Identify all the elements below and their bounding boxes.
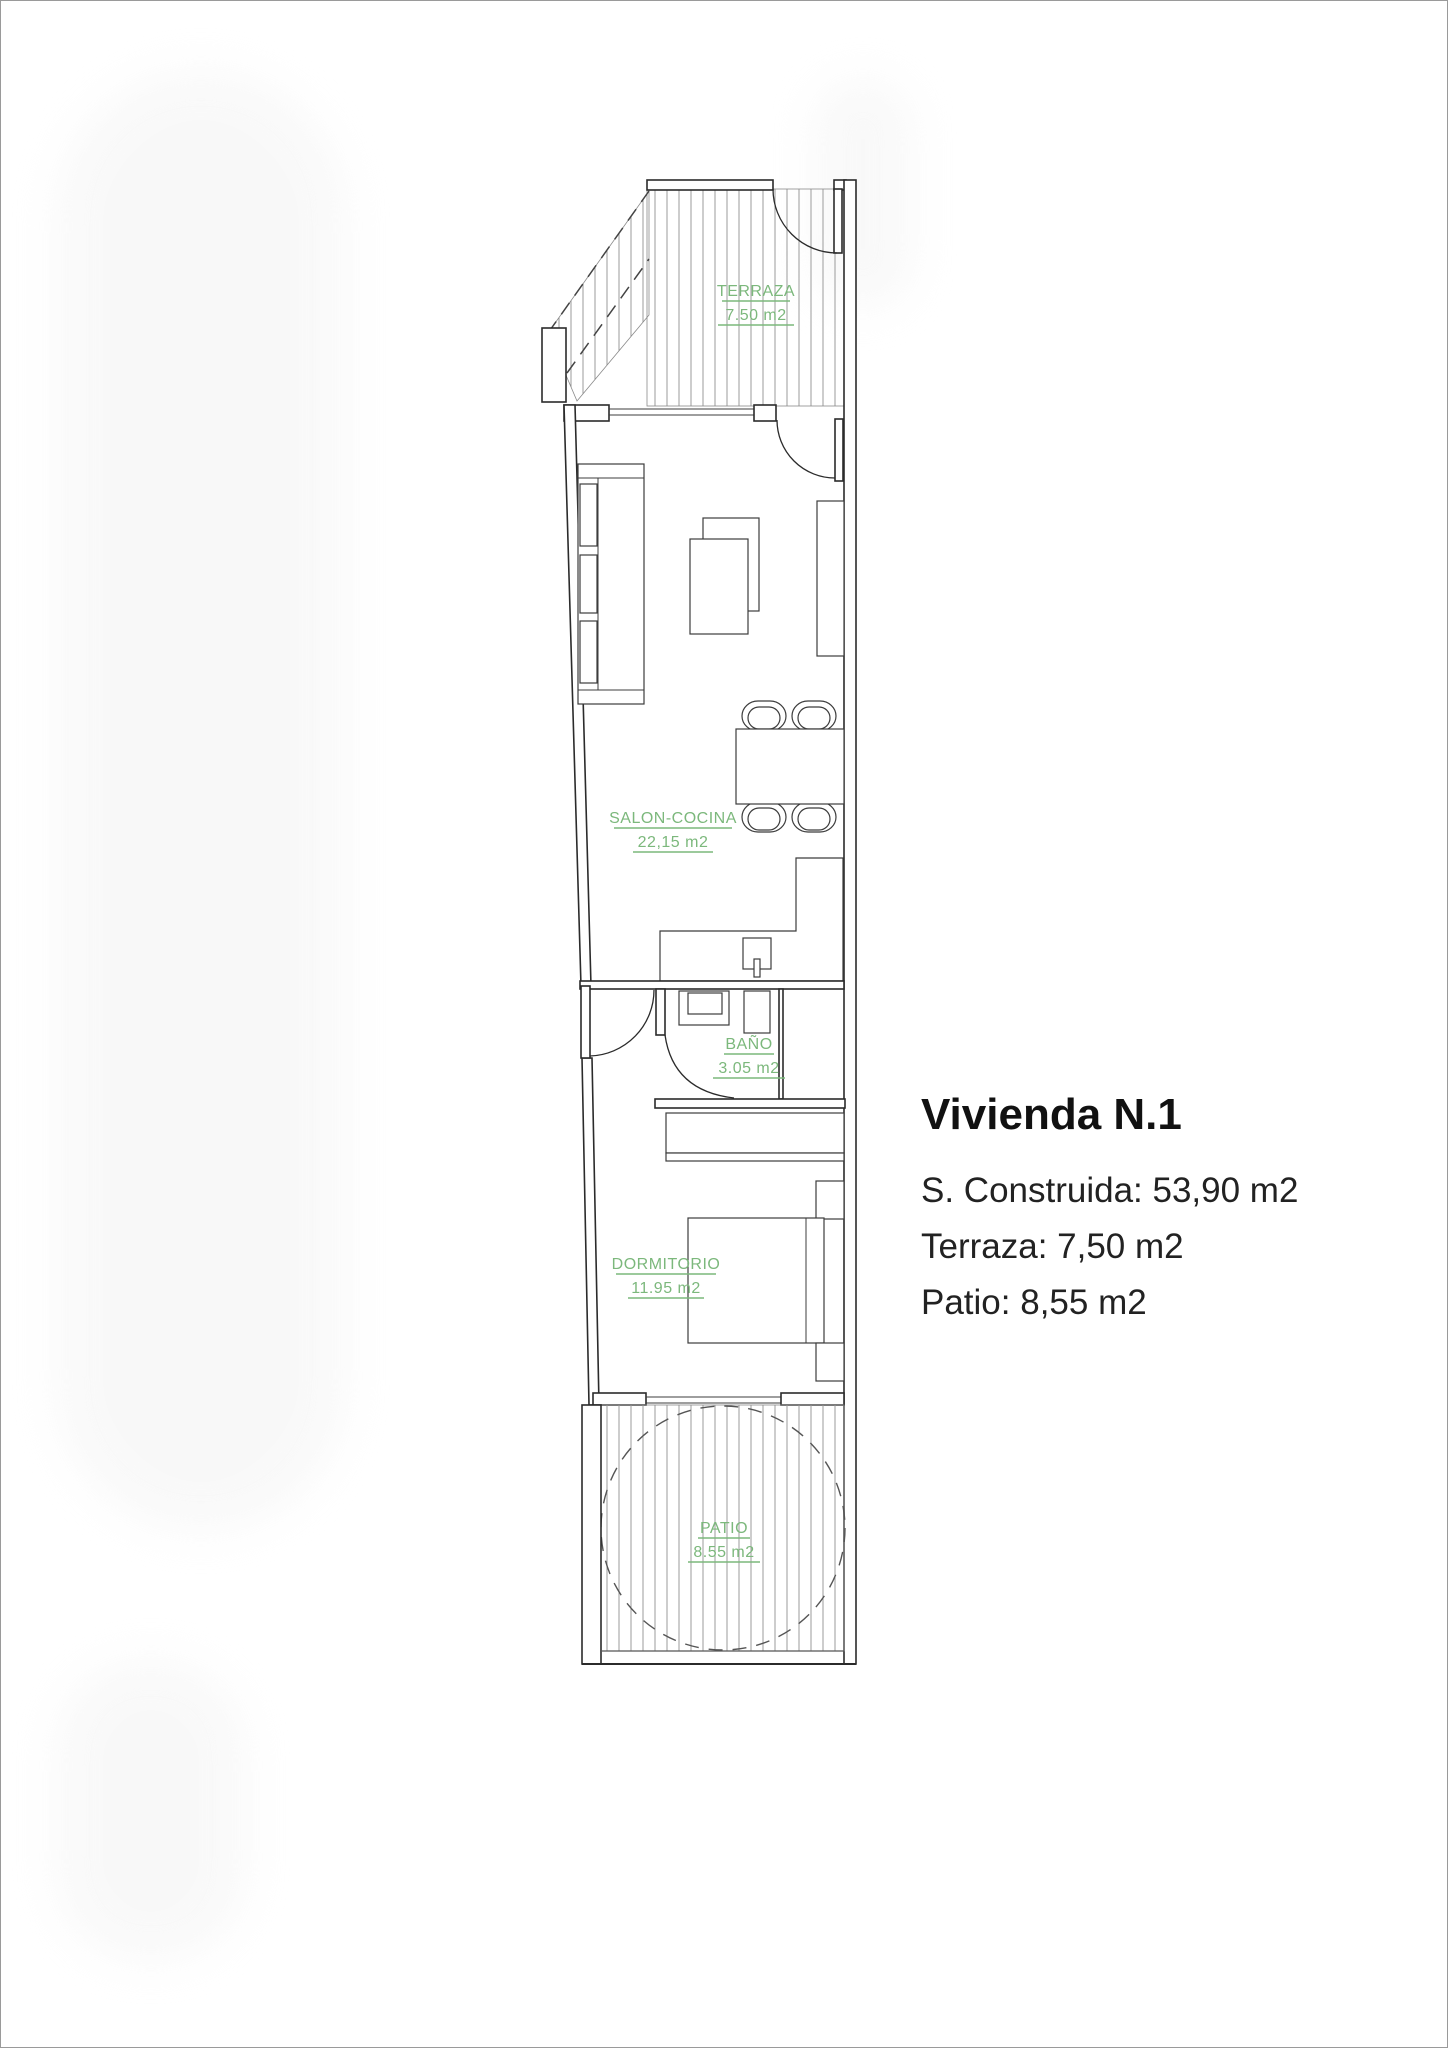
kitchen-column: [817, 501, 844, 656]
dining-chair-inner: [748, 808, 780, 830]
bath-partition: [779, 989, 783, 1099]
floor-plan-drawing: TERRAZA 7.50 m2 SALON-COCINA 22,15 m2 BA…: [1, 1, 1448, 2048]
patio-name: PATIO: [700, 1520, 748, 1537]
dormitorio-area: 11.95 m2: [631, 1280, 701, 1297]
entry-door-arc: [777, 420, 835, 478]
bed: [688, 1218, 824, 1343]
kitchen-tap: [754, 959, 760, 977]
terrace-area-line: Terraza: 7,50 m2: [921, 1219, 1298, 1275]
dining-set: [736, 701, 844, 832]
salon-top-wall-mid: [754, 405, 776, 421]
room-label-bano: BAÑO 3.05 m2: [713, 1033, 785, 1078]
wardrobe: [666, 1113, 844, 1153]
salon-area: 22,15 m2: [638, 834, 709, 851]
bath-door-leaf: [656, 989, 665, 1035]
terraza-area: 7.50 m2: [725, 307, 786, 324]
bath-sink: [688, 993, 722, 1014]
left-wall-lower: [582, 1058, 599, 1405]
dining-table: [736, 729, 844, 804]
terraza-name: TERRAZA: [717, 283, 795, 300]
bath-top-wall: [580, 981, 844, 989]
dining-chair-inner: [748, 707, 780, 729]
sofa: [578, 464, 644, 704]
terrace-door-leaf: [834, 189, 842, 253]
terrace-top-wall: [647, 180, 773, 190]
hall-door-leaf: [581, 986, 590, 1058]
patio-area-line: Patio: 8,55 m2: [921, 1275, 1298, 1331]
stair-wall-stub: [542, 328, 566, 402]
right-wall: [844, 180, 856, 1664]
entry-door-leaf: [835, 419, 843, 481]
bath-toilet: [744, 991, 770, 1033]
unit-title: Vivienda N.1: [921, 1089, 1298, 1141]
nightstand-top: [816, 1181, 844, 1219]
room-label-salon: SALON-COCINA 22,15 m2: [609, 810, 737, 852]
unit-info-block: Vivienda N.1 S. Construida: 53,90 m2 Ter…: [921, 1089, 1298, 1331]
floor-plan-page: TERRAZA 7.50 m2 SALON-COCINA 22,15 m2 BA…: [0, 0, 1448, 2048]
nightstand-bottom: [816, 1343, 844, 1381]
patio-area: 8.55 m2: [693, 1544, 754, 1561]
kitchen-counter: [660, 858, 843, 981]
dining-chair-inner: [798, 808, 830, 830]
hall-door-arc: [590, 990, 654, 1056]
bedroom-bottom-wall-right: [781, 1393, 844, 1405]
wardrobe-front: [666, 1153, 844, 1161]
bano-name: BAÑO: [725, 1033, 772, 1053]
dormitorio-name: DORMITORIO: [612, 1256, 721, 1273]
built-area-line: S. Construida: 53,90 m2: [921, 1163, 1298, 1219]
salon-name: SALON-COCINA: [609, 810, 737, 827]
patio-left-wall: [582, 1405, 601, 1664]
bedroom-bottom-wall-left: [593, 1393, 646, 1405]
bath-bottom-wall: [655, 1099, 845, 1108]
dining-chair-inner: [798, 707, 830, 729]
bano-area: 3.05 m2: [718, 1060, 779, 1077]
coffee-table: [690, 518, 759, 634]
